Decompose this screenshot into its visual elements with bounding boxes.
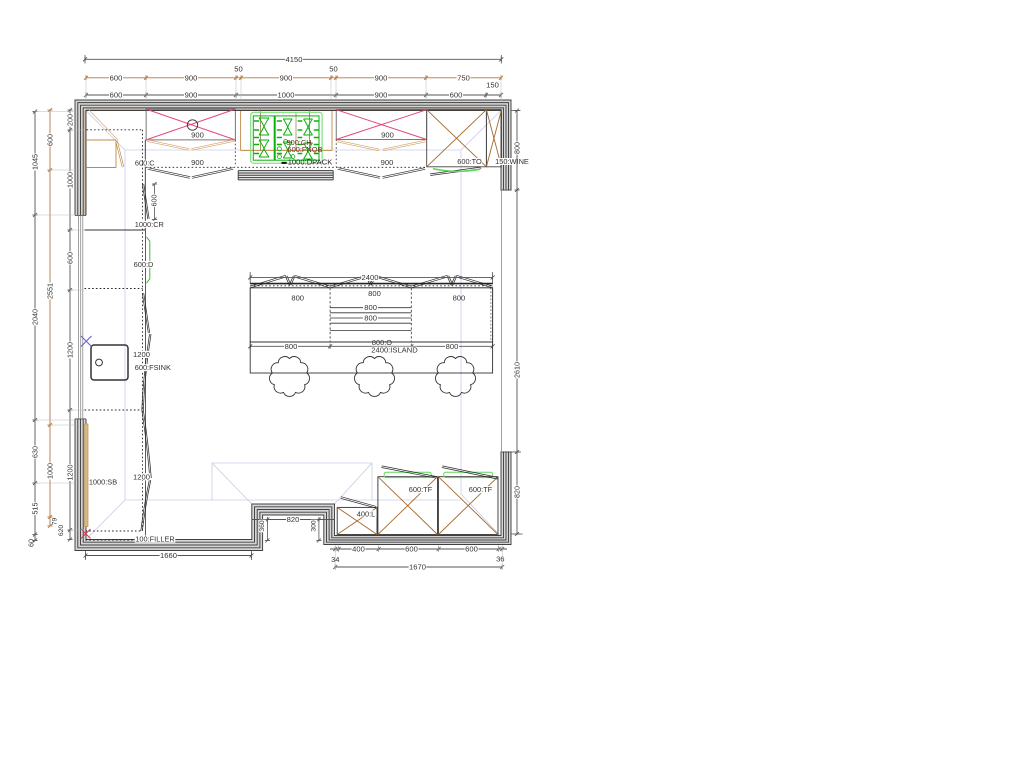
- svg-text:2400: 2400: [362, 273, 379, 282]
- svg-text:900: 900: [375, 73, 388, 82]
- svg-text:400: 400: [352, 545, 365, 554]
- svg-text:2400:ISLAND: 2400:ISLAND: [371, 346, 418, 355]
- svg-text:79: 79: [52, 518, 59, 526]
- svg-text:750: 750: [457, 73, 470, 82]
- svg-text:900: 900: [375, 91, 388, 100]
- svg-text:800: 800: [291, 294, 304, 303]
- svg-text:800: 800: [446, 342, 459, 351]
- svg-text:300: 300: [311, 520, 318, 532]
- svg-text:820: 820: [513, 486, 522, 498]
- svg-text:800: 800: [285, 342, 298, 351]
- svg-text:1200: 1200: [66, 465, 75, 481]
- svg-text:900: 900: [381, 158, 394, 167]
- svg-text:1045: 1045: [31, 154, 40, 170]
- svg-text:1200: 1200: [133, 350, 150, 359]
- svg-text:2551: 2551: [46, 283, 55, 299]
- svg-text:600: 600: [465, 545, 478, 554]
- svg-text:600: 600: [150, 195, 159, 207]
- svg-text:900: 900: [381, 131, 394, 140]
- svg-text:4150: 4150: [286, 55, 303, 64]
- svg-text:800: 800: [368, 289, 381, 298]
- svg-text:800: 800: [453, 294, 466, 303]
- svg-text:1200: 1200: [133, 472, 150, 481]
- svg-text:800: 800: [364, 303, 377, 312]
- svg-text:600: 600: [46, 134, 55, 146]
- svg-text:36: 36: [496, 554, 504, 563]
- svg-text:600:FSINK: 600:FSINK: [135, 363, 171, 372]
- svg-text:620: 620: [58, 525, 65, 537]
- svg-text:900: 900: [191, 158, 204, 167]
- svg-text:600:TF: 600:TF: [469, 485, 493, 494]
- svg-text:900: 900: [185, 91, 198, 100]
- svg-text:150:WINE: 150:WINE: [495, 157, 529, 166]
- svg-text:60: 60: [27, 539, 36, 547]
- svg-text:600: 600: [66, 252, 75, 264]
- svg-text:600: 600: [110, 91, 123, 100]
- svg-text:2610: 2610: [513, 362, 522, 378]
- svg-text:1000: 1000: [46, 463, 55, 479]
- svg-text:515: 515: [31, 503, 40, 515]
- svg-text:50: 50: [329, 64, 337, 73]
- svg-text:150: 150: [486, 81, 499, 90]
- svg-text:50: 50: [234, 64, 242, 73]
- svg-text:2040: 2040: [31, 309, 40, 325]
- svg-text:600:TF: 600:TF: [409, 485, 433, 494]
- svg-text:1000: 1000: [278, 91, 295, 100]
- svg-text:600: 600: [450, 91, 463, 100]
- svg-text:600: 600: [110, 73, 123, 82]
- svg-text:1660: 1660: [160, 551, 177, 560]
- svg-text:630: 630: [31, 446, 40, 458]
- svg-text:600:C: 600:C: [135, 159, 155, 168]
- svg-text:600:TO: 600:TO: [457, 157, 482, 166]
- svg-text:1000: 1000: [66, 172, 75, 188]
- svg-text:800: 800: [364, 314, 377, 323]
- svg-text:1000:CR: 1000:CR: [135, 220, 164, 229]
- svg-text:600:D: 600:D: [134, 260, 154, 269]
- svg-text:1670: 1670: [409, 563, 426, 572]
- svg-text:820: 820: [287, 515, 300, 524]
- svg-text:100:FILLER: 100:FILLER: [135, 535, 174, 544]
- svg-text:200: 200: [66, 114, 75, 126]
- svg-text:360: 360: [259, 520, 266, 532]
- svg-text:1200: 1200: [66, 342, 75, 358]
- svg-text:900: 900: [185, 73, 198, 82]
- svg-text:900: 900: [191, 130, 204, 139]
- svg-text:900: 900: [280, 73, 293, 82]
- svg-text:1000:DPACK: 1000:DPACK: [288, 158, 333, 167]
- svg-text:1000:SB: 1000:SB: [89, 478, 117, 487]
- svg-text:800: 800: [513, 142, 522, 154]
- svg-text:400:L: 400:L: [357, 509, 376, 518]
- svg-text:600:FNQB: 600:FNQB: [288, 145, 323, 154]
- svg-text:600: 600: [405, 545, 418, 554]
